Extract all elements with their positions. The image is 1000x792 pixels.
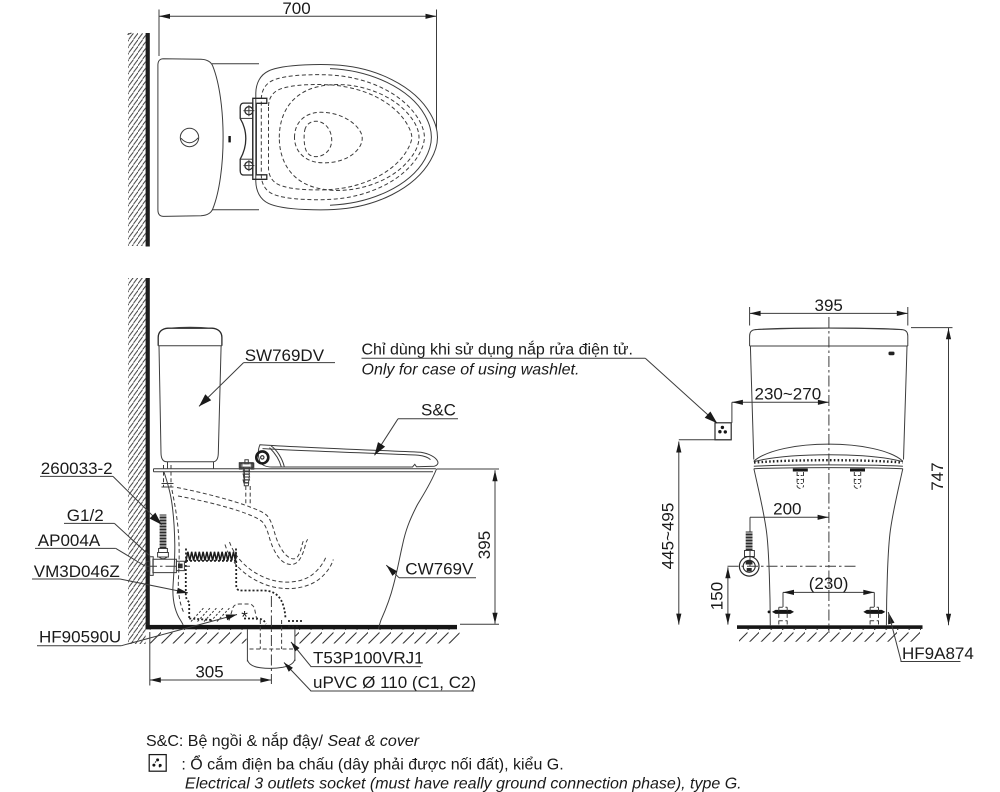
svg-text:Electrical 3 outlets socket (m: Electrical 3 outlets socket (must have r… [185,776,742,792]
svg-text:HF9A874: HF9A874 [902,644,974,663]
svg-text:G1/2: G1/2 [67,506,104,525]
svg-text:395: 395 [475,531,494,559]
svg-text:747: 747 [928,462,947,490]
svg-text:S&C: Bệ ngồi & nắp đậy/ Seat &: S&C: Bệ ngồi & nắp đậy/ Seat & cover [146,731,420,750]
svg-text:T53P100VRJ1: T53P100VRJ1 [313,649,424,668]
svg-text:445~495: 445~495 [658,503,677,570]
svg-text:S&C: S&C [421,400,456,419]
svg-text:VM3D046Z: VM3D046Z [34,562,120,581]
svg-text:260033-2: 260033-2 [41,459,113,478]
svg-text:*: * [241,608,248,627]
svg-text:: Ổ cắm điện ba chấu (dây phải: : Ổ cắm điện ba chấu (dây phải được nối … [181,755,563,774]
svg-text:150: 150 [708,582,727,610]
svg-text:uPVC Ø 110 (C1, C2): uPVC Ø 110 (C1, C2) [313,673,476,692]
svg-text:700: 700 [282,0,310,18]
svg-text:230~270: 230~270 [755,385,822,404]
svg-text:Chỉ dùng khi sử dụng nắp rửa đ: Chỉ dùng khi sử dụng nắp rửa điện tử. [362,339,633,358]
svg-text:HF90590U: HF90590U [39,628,121,647]
svg-text:Only for case of using washlet: Only for case of using washlet. [362,361,580,378]
svg-text:AP004A: AP004A [38,531,101,550]
svg-text:(230): (230) [809,574,849,593]
svg-text:CW769V: CW769V [405,560,474,579]
svg-text:200: 200 [773,500,801,519]
svg-text:395: 395 [815,296,843,315]
svg-text:305: 305 [195,662,223,681]
